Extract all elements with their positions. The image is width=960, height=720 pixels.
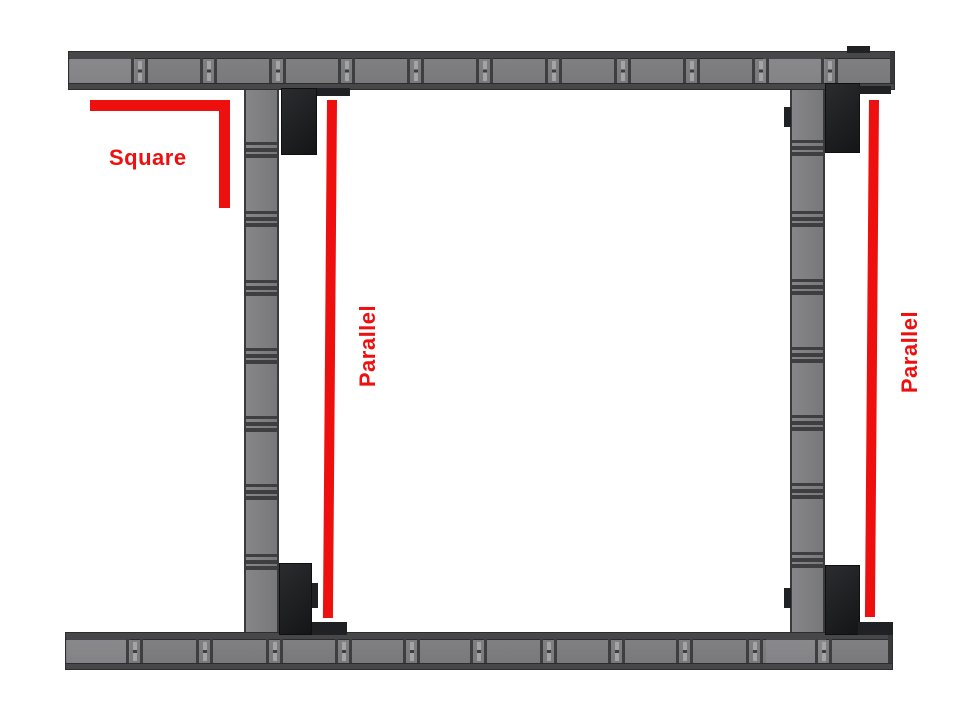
joint-line [145, 58, 148, 84]
channel-joint [338, 59, 355, 83]
joint-line [752, 58, 755, 84]
channel-end-cap [890, 52, 894, 89]
joint-slot [690, 61, 694, 81]
joint-slot [552, 61, 556, 81]
left-channel-lower-side-tab [312, 583, 318, 608]
channel-joint [131, 59, 148, 83]
joint-slot [133, 642, 137, 661]
joint-line [349, 639, 352, 664]
channel-joint [540, 640, 557, 663]
joint-line [335, 639, 338, 664]
channel-slot-band [792, 347, 823, 363]
joint-line [131, 58, 134, 84]
channel-slot-band [246, 554, 277, 570]
joint-slot [345, 61, 349, 81]
channel-joint [200, 59, 217, 83]
joint-slot [276, 61, 280, 81]
joint-line [417, 639, 420, 664]
channel-slot-band [246, 484, 277, 500]
channel-joint [470, 640, 487, 663]
channel-joint [676, 640, 693, 663]
parallel-label-right: Parallel [897, 311, 923, 393]
joint-slot [753, 642, 757, 661]
joint-line [746, 639, 749, 664]
channel-joint [335, 640, 352, 663]
joint-slot [683, 642, 687, 661]
joint-slot [477, 642, 481, 661]
joint-line [196, 639, 199, 664]
joint-line [126, 639, 129, 664]
joint-line [628, 58, 631, 84]
square-label: Square [109, 145, 187, 171]
joint-slot [621, 61, 625, 81]
channel-joint [746, 640, 763, 663]
channel-end-shading [70, 58, 135, 84]
channel-joint [196, 640, 213, 663]
bottom-right-gusset [825, 565, 860, 635]
channel-joint [476, 59, 493, 83]
joint-line [421, 58, 424, 84]
joint-line [697, 58, 700, 84]
bottom-horizontal-channel [65, 632, 893, 670]
diagram-canvas: Square Parallel Parallel [0, 0, 960, 720]
channel-end-cap [888, 633, 892, 669]
channel-joint [266, 640, 283, 663]
right-vertical-channel [790, 90, 825, 632]
joint-line [470, 639, 473, 664]
joint-line [540, 639, 543, 664]
channel-joint [269, 59, 286, 83]
joint-line [614, 58, 617, 84]
joint-line [280, 639, 283, 664]
joint-slot [615, 642, 619, 661]
joint-line [214, 58, 217, 84]
channel-joint [683, 59, 700, 83]
channel-joint [403, 640, 420, 663]
joint-line [269, 58, 272, 84]
joint-line [403, 639, 406, 664]
joint-line [476, 58, 479, 84]
bottom-left-gusset [279, 563, 312, 635]
joint-line [815, 639, 818, 664]
square-annotation-horizontal-line [90, 100, 230, 111]
joint-line [554, 639, 557, 664]
channel-joint [608, 640, 625, 663]
joint-slot [138, 61, 142, 81]
joint-line [338, 58, 341, 84]
channel-joint [821, 59, 838, 83]
channel-joint [614, 59, 631, 83]
channel-slot-band [246, 348, 277, 364]
joint-line [559, 58, 562, 84]
top-left-gusset [281, 88, 317, 155]
joint-line [352, 58, 355, 84]
joint-line [484, 639, 487, 664]
joint-line [210, 639, 213, 664]
channel-joint [126, 640, 143, 663]
joint-line [490, 58, 493, 84]
right-channel-upper-side-tab [784, 107, 791, 127]
joint-line [622, 639, 625, 664]
top-left-gusset-tab [317, 88, 350, 96]
joint-slot [207, 61, 211, 81]
joint-slot [203, 642, 207, 661]
top-right-gusset [825, 83, 860, 153]
right-channel-lower-side-tab [784, 588, 791, 608]
channel-slot-band [792, 552, 823, 568]
channel-slot-band [246, 142, 277, 158]
channel-joint [407, 59, 424, 83]
channel-end-shading [763, 58, 825, 84]
channel-joint [752, 59, 769, 83]
bottom-left-gusset-tab [312, 622, 347, 635]
joint-slot [822, 642, 826, 661]
joint-line [140, 639, 143, 664]
top-right-channel-top-tab [847, 46, 870, 53]
joint-line [283, 58, 286, 84]
joint-line [683, 58, 686, 84]
channel-slot-band [792, 279, 823, 295]
joint-slot [483, 61, 487, 81]
joint-line [676, 639, 679, 664]
channel-slot-band [792, 211, 823, 227]
joint-slot [342, 642, 346, 661]
channel-joint [545, 59, 562, 83]
joint-line [760, 639, 763, 664]
joint-line [690, 639, 693, 664]
joint-line [835, 58, 838, 84]
joint-line [407, 58, 410, 84]
parallel-label-left: Parallel [355, 305, 381, 387]
joint-line [608, 639, 611, 664]
joint-slot [410, 642, 414, 661]
channel-slot-band [246, 416, 277, 432]
joint-line [200, 58, 203, 84]
joint-slot [828, 61, 832, 81]
joint-slot [414, 61, 418, 81]
channel-slot-band [792, 140, 823, 156]
joint-line [821, 58, 824, 84]
joint-slot [273, 642, 277, 661]
joint-line [766, 58, 769, 84]
left-vertical-channel [244, 88, 279, 632]
joint-line [545, 58, 548, 84]
square-annotation-vertical-line [219, 100, 230, 208]
joint-line [829, 639, 832, 664]
joint-slot [547, 642, 551, 661]
bottom-right-gusset-tab [858, 622, 893, 635]
channel-slot-band [246, 211, 277, 227]
channel-joint [815, 640, 832, 663]
top-right-gusset-under-tab [858, 86, 891, 94]
joint-slot [759, 61, 763, 81]
parallel-line-left [323, 100, 337, 618]
channel-slot-band [246, 280, 277, 296]
joint-line [266, 639, 269, 664]
channel-slot-band [792, 483, 823, 499]
parallel-line-right [865, 100, 879, 617]
channel-end-shading [67, 639, 130, 664]
channel-slot-band [792, 415, 823, 431]
top-horizontal-channel [68, 51, 895, 90]
